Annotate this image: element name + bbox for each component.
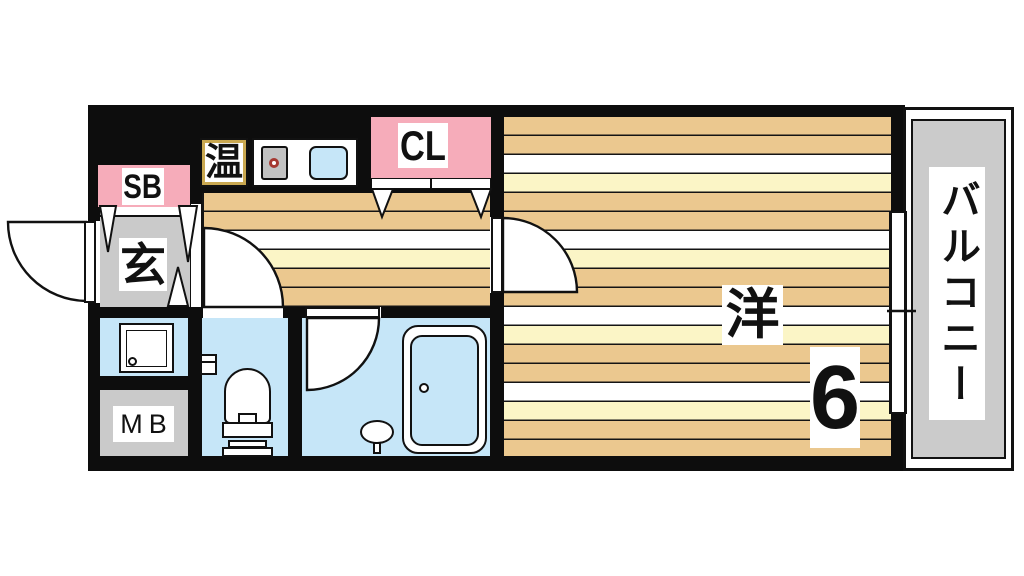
bath-faucet-basin <box>360 420 394 444</box>
entrance-label-bg: 玄 <box>119 238 167 291</box>
toilet-foot <box>222 447 273 457</box>
western-room-label: 洋 <box>726 288 780 342</box>
wall-bottom <box>88 456 905 471</box>
entrance-door-swing <box>8 222 86 301</box>
wall-wet-horizontal <box>88 307 505 318</box>
entrance-door-gap <box>88 221 100 303</box>
balcony-window <box>889 211 907 414</box>
water-heater-label: 温 <box>205 144 243 182</box>
wall-top <box>504 105 822 117</box>
wall-top-left-band <box>88 105 202 165</box>
wall-wash-mb <box>88 376 188 390</box>
closet-label-bg: CL <box>398 123 448 168</box>
wall-wash-toilet <box>188 318 202 456</box>
kitchen-sink <box>309 146 348 180</box>
water-heater-box: 温 <box>200 138 248 187</box>
burner-ring-icon <box>269 158 279 168</box>
room-kitchen-floor <box>202 193 490 307</box>
bathroom-door-gap <box>305 307 381 318</box>
bathtub-drain-icon <box>419 383 429 393</box>
meter-box-label-bg: MB <box>113 406 174 442</box>
western-door-gap <box>490 217 504 293</box>
closet-door-track-divider <box>430 178 432 189</box>
shoe-box-label: SB <box>124 170 163 204</box>
western-room-size: 6 <box>810 353 860 443</box>
closet-label: CL <box>400 125 446 167</box>
meter-box-label: MB <box>114 411 173 438</box>
toilet-paper-holder-line <box>200 361 217 363</box>
toilet-paper-holder <box>200 354 217 375</box>
toilet-door-gap <box>203 307 283 318</box>
balcony-label: バルコニー <box>929 167 985 420</box>
shoe-box-label-bg: SB <box>122 168 164 205</box>
floorplan: バルコニー 温 SB CL 玄 MB <box>0 0 1024 576</box>
western-room-label-bg: 洋 <box>722 285 783 345</box>
western-room-size-bg: 6 <box>810 347 860 448</box>
toilet-tank <box>222 422 273 438</box>
entrance-label: 玄 <box>120 242 166 288</box>
wall-toilet-bath <box>288 318 302 456</box>
washer-drain-icon <box>128 357 137 366</box>
kitchen-door-leaf-strip <box>190 204 202 307</box>
